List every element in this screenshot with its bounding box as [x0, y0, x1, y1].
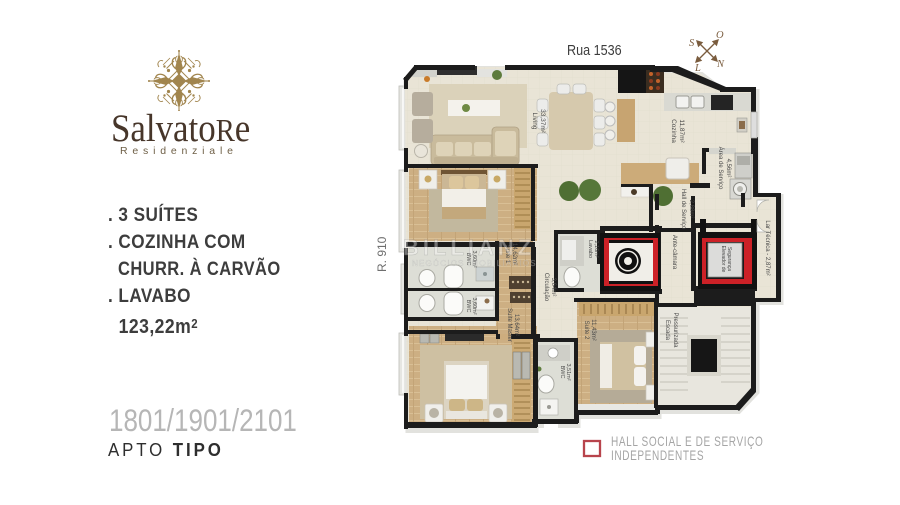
- svg-text:Suite Master: Suite Master: [506, 308, 512, 342]
- svg-text:R. 910: R. 910: [375, 236, 389, 272]
- svg-text:O: O: [716, 30, 724, 41]
- svg-text:11,87m²: 11,87m²: [678, 119, 685, 143]
- svg-text:4,56m²: 4,56m²: [725, 159, 731, 178]
- svg-text:L: L: [694, 63, 701, 74]
- svg-text:Escada: Escada: [664, 320, 670, 341]
- svg-text:2,16m²: 2,16m²: [593, 240, 599, 257]
- svg-text:Área de Serviço: Área de Serviço: [717, 147, 724, 190]
- svg-text:Pressurizada: Pressurizada: [672, 312, 678, 348]
- svg-text:Elevador de: Elevador de: [720, 246, 726, 273]
- svg-text:Circulação: Circulação: [543, 273, 549, 302]
- svg-text:3,60m²: 3,60m²: [471, 297, 477, 314]
- svg-text:3,51m²: 3,51m²: [565, 363, 571, 380]
- svg-text:3,64m²: 3,64m²: [550, 278, 556, 297]
- svg-text:Lar Técnica - 2,87m²: Lar Técnica - 2,87m²: [764, 220, 770, 275]
- svg-text:Rua 1536: Rua 1536: [567, 41, 622, 58]
- svg-text:INDEPENDENTES: INDEPENDENTES: [611, 448, 704, 464]
- svg-text:Hall de Serviço: Hall de Serviço: [680, 189, 686, 230]
- svg-text:BWC: BWC: [559, 366, 565, 379]
- svg-text:13,64m²: 13,64m²: [513, 314, 519, 336]
- svg-text:11,43m²: 11,43m²: [590, 319, 596, 341]
- svg-text:Ante-câmara: Ante-câmara: [671, 235, 677, 270]
- svg-text:NEGÓCIOS IMOBILIÁRIOS: NEGÓCIOS IMOBILIÁRIOS: [412, 259, 537, 268]
- svg-text:Suite 2: Suite 2: [583, 321, 589, 340]
- svg-text:BILLIANZ: BILLIANZ: [403, 235, 535, 260]
- svg-text:Living: Living: [531, 113, 538, 130]
- svg-text:Lavabo: Lavabo: [587, 240, 593, 258]
- svg-text:N: N: [716, 59, 725, 70]
- svg-text:Segurança: Segurança: [726, 247, 732, 271]
- svg-text:S: S: [689, 38, 695, 49]
- svg-text:Cozinha: Cozinha: [670, 119, 677, 143]
- svg-text:33,37m²: 33,37m²: [539, 109, 546, 134]
- svg-text:BWC: BWC: [465, 300, 471, 313]
- svg-text:2,88m²: 2,88m²: [688, 200, 694, 219]
